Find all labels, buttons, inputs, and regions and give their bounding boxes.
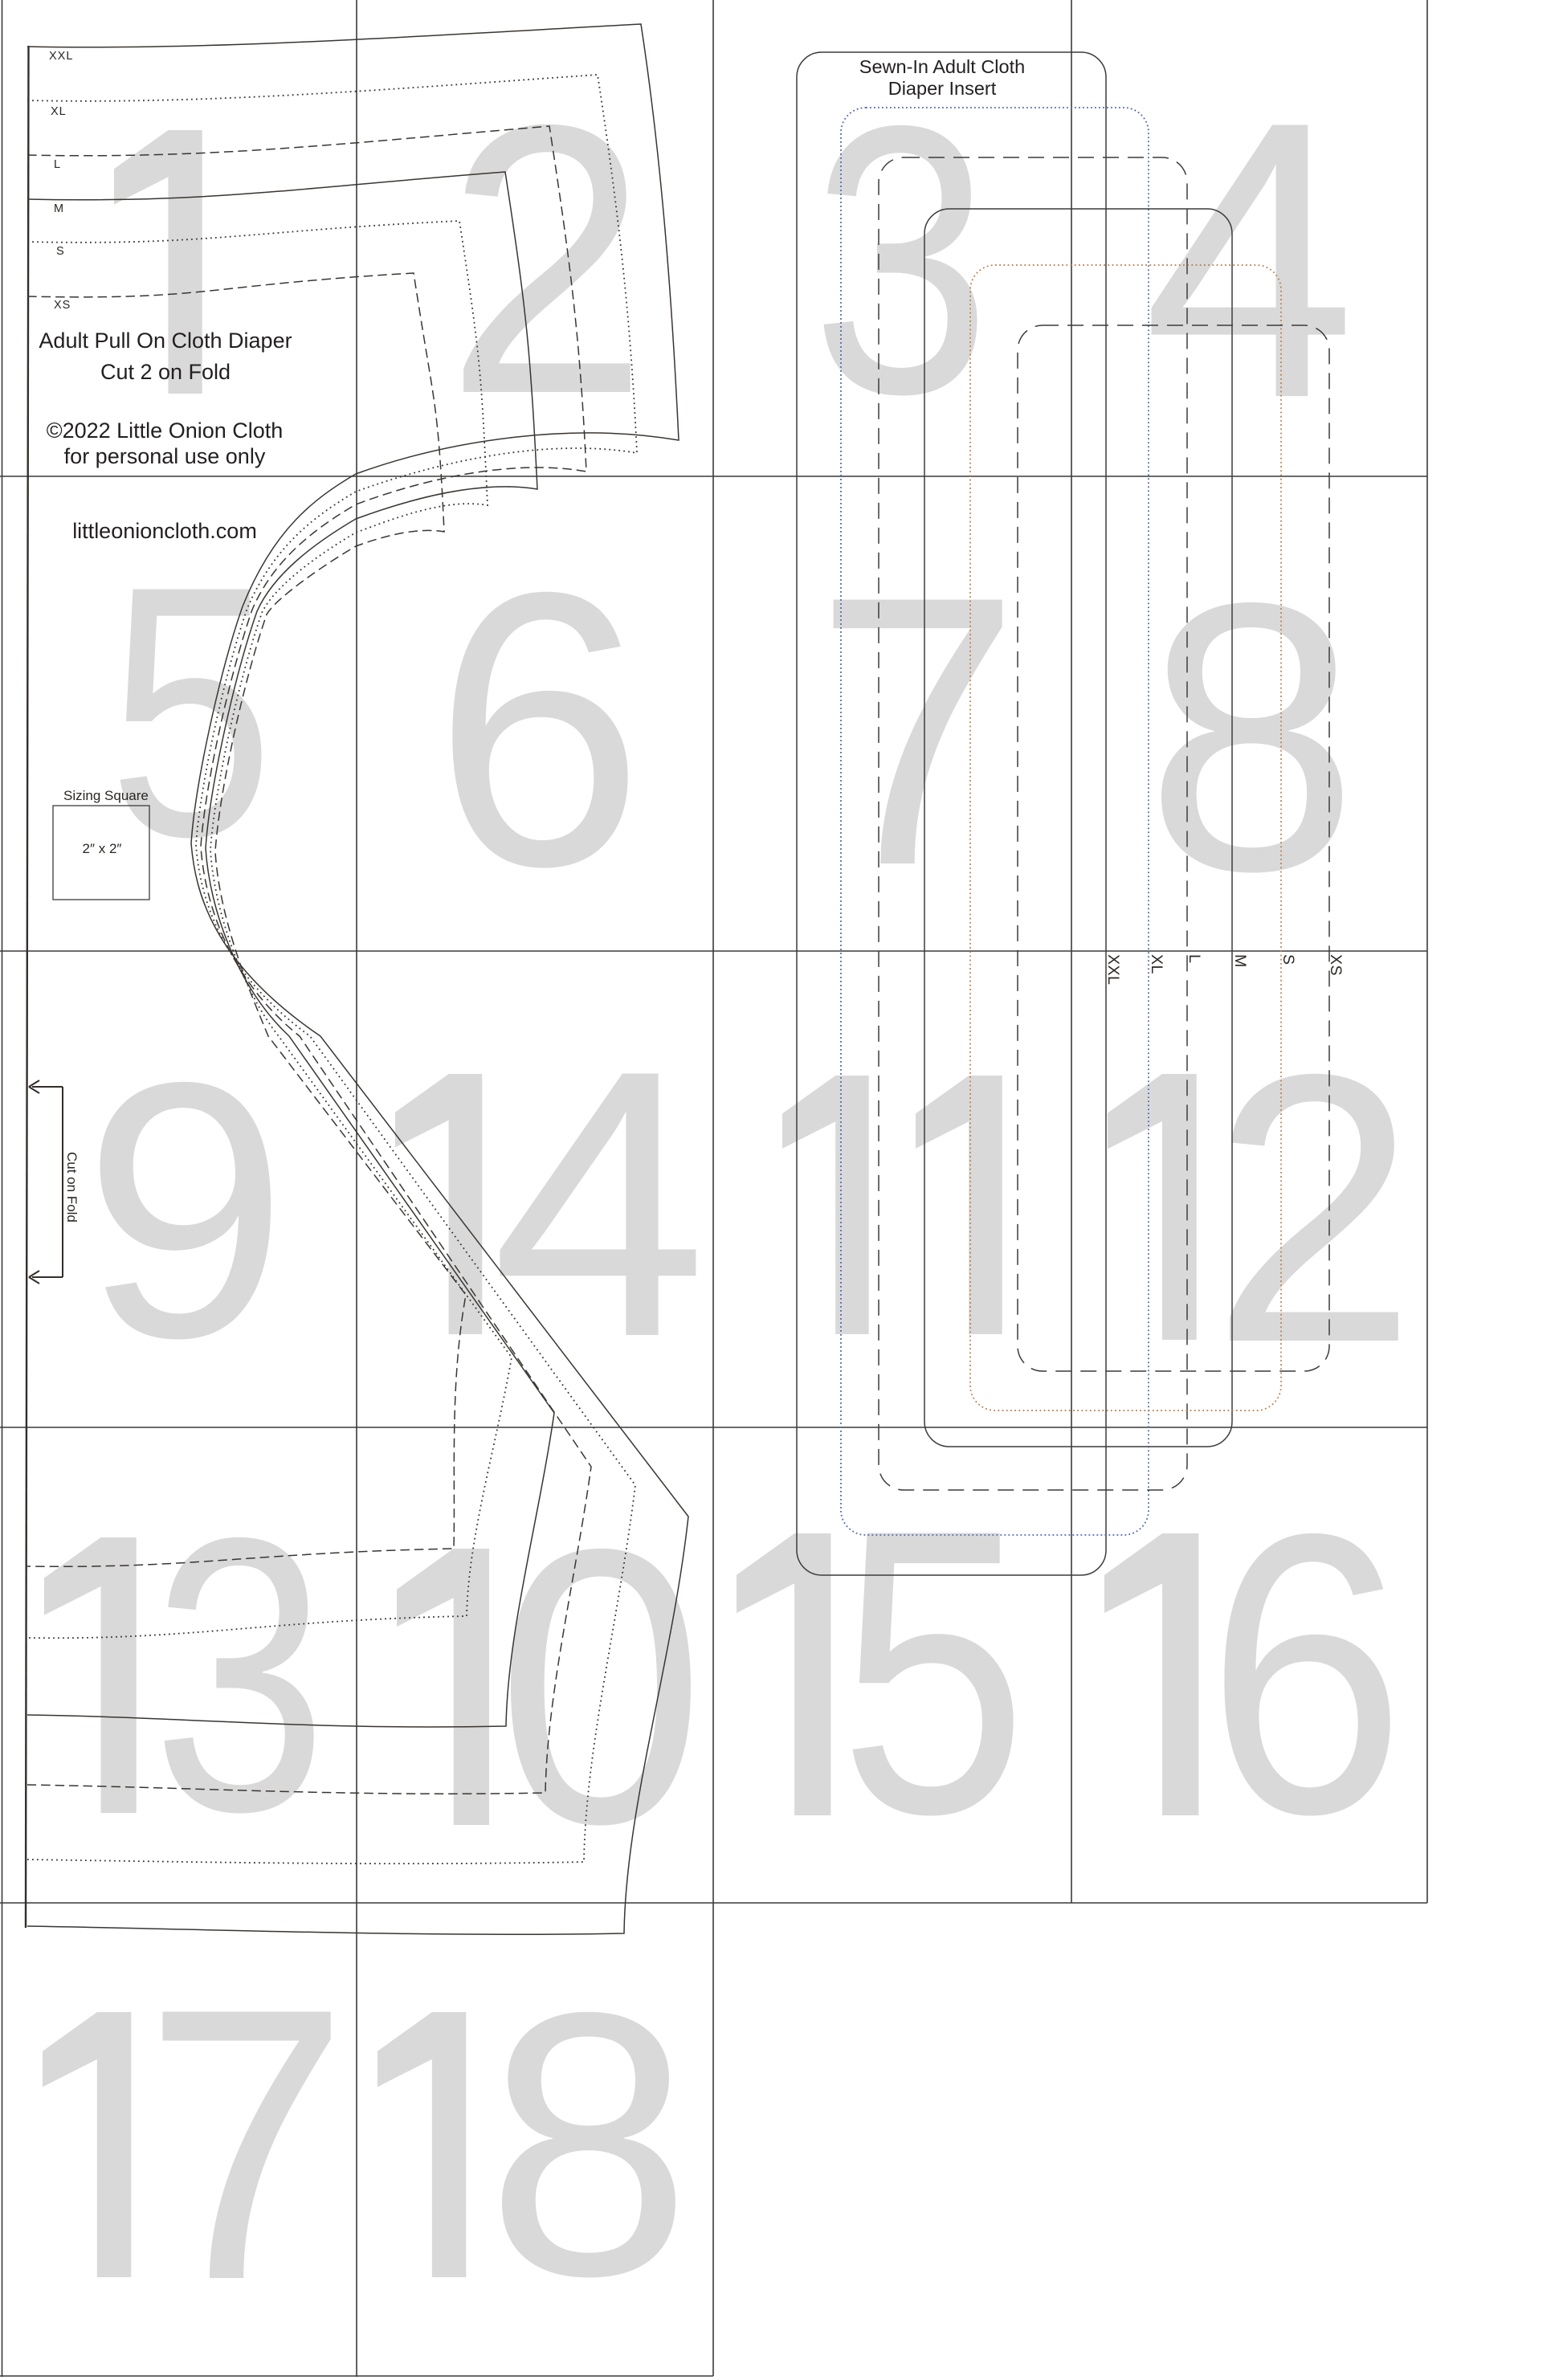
- svg-text:5: 5: [839, 1445, 1028, 1898]
- svg-text:2: 2: [1211, 995, 1417, 1423]
- svg-text:9: 9: [83, 1006, 288, 1413]
- svg-text:XXL: XXL: [49, 50, 73, 63]
- svg-text:5: 5: [108, 512, 274, 910]
- svg-text:8: 8: [1145, 525, 1359, 951]
- svg-text:Sewn-In Adult Cloth: Sewn-In Adult Cloth: [859, 56, 1025, 77]
- svg-text:Diaper Insert: Diaper Insert: [888, 78, 997, 99]
- svg-text:3: 3: [811, 47, 991, 473]
- svg-text:L: L: [1186, 954, 1203, 963]
- svg-text:XS: XS: [1327, 954, 1345, 976]
- svg-text:7: 7: [144, 1928, 349, 2360]
- svg-text:Sizing Square: Sizing Square: [63, 788, 149, 803]
- svg-text:3: 3: [153, 1456, 328, 1892]
- svg-text:2: 2: [445, 45, 648, 473]
- svg-text:6: 6: [433, 511, 644, 947]
- svg-text:Cut 2 on Fold: Cut 2 on Fold: [100, 360, 231, 384]
- svg-text:M: M: [1231, 954, 1249, 968]
- svg-text:M: M: [54, 202, 64, 215]
- svg-text:littleonioncloth.com: littleonioncloth.com: [72, 519, 257, 543]
- svg-text:XXL: XXL: [1104, 954, 1122, 985]
- svg-text:Cut on Fold: Cut on Fold: [64, 1152, 80, 1223]
- svg-text:S: S: [56, 245, 65, 258]
- svg-text:L: L: [54, 158, 61, 171]
- svg-text:0: 0: [496, 1469, 706, 1905]
- svg-text:7: 7: [814, 516, 1021, 945]
- svg-text:4: 4: [491, 992, 707, 1416]
- svg-text:8: 8: [486, 1935, 692, 2354]
- svg-text:2″ x 2″: 2″ x 2″: [83, 841, 122, 856]
- svg-text:6: 6: [1206, 1451, 1406, 1897]
- svg-text:©2022 Little Onion Cloth: ©2022 Little Onion Cloth: [47, 418, 284, 443]
- svg-text:Adult Pull On Cloth Diaper: Adult Pull On Cloth Diaper: [39, 329, 292, 353]
- svg-text:XL: XL: [51, 105, 67, 118]
- svg-text:for personal use only: for personal use only: [64, 444, 266, 468]
- svg-text:4: 4: [1143, 39, 1357, 480]
- svg-text:XL: XL: [1148, 954, 1165, 974]
- svg-text:S: S: [1279, 954, 1297, 965]
- svg-text:XS: XS: [54, 299, 71, 312]
